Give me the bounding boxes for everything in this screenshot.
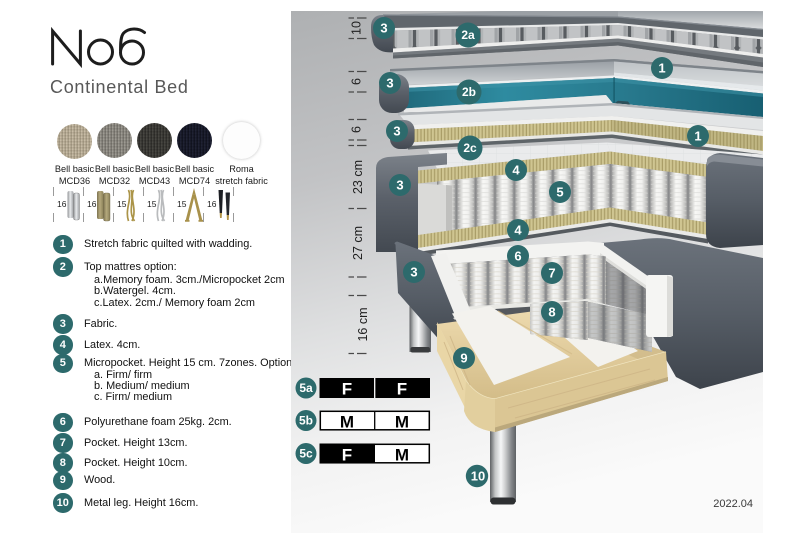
svg-text:27 cm: 27 cm	[351, 226, 365, 260]
svg-text:F: F	[342, 446, 352, 465]
svg-text:2b: 2b	[462, 85, 476, 99]
svg-text:4: 4	[514, 223, 522, 238]
svg-text:5: 5	[556, 185, 563, 200]
svg-text:15: 15	[147, 199, 157, 209]
svg-text:3: 3	[396, 178, 403, 193]
svg-text:M: M	[395, 446, 409, 465]
svg-text:15: 15	[117, 199, 127, 209]
svg-text:6: 6	[350, 78, 364, 85]
svg-text:5c: 5c	[299, 447, 313, 461]
svg-text:9: 9	[460, 351, 467, 366]
svg-text:16 cm: 16 cm	[356, 307, 370, 341]
svg-text:F: F	[342, 380, 352, 399]
svg-text:10: 10	[471, 469, 485, 484]
svg-text:M: M	[395, 413, 409, 432]
svg-text:16: 16	[207, 199, 217, 209]
svg-text:5b: 5b	[299, 414, 313, 428]
svg-text:M: M	[340, 413, 354, 432]
svg-text:6: 6	[514, 249, 521, 264]
svg-text:4: 4	[512, 163, 520, 178]
svg-text:1: 1	[694, 129, 701, 144]
svg-text:16: 16	[57, 199, 67, 209]
svg-text:2022.04: 2022.04	[713, 498, 753, 510]
svg-text:F: F	[397, 380, 407, 399]
svg-text:1: 1	[658, 61, 665, 76]
svg-text:3: 3	[393, 124, 400, 139]
svg-text:10: 10	[350, 21, 364, 35]
svg-text:2a: 2a	[461, 28, 475, 42]
svg-text:7: 7	[548, 266, 555, 281]
svg-text:6: 6	[350, 126, 364, 133]
svg-text:2c: 2c	[463, 141, 477, 155]
svg-text:8: 8	[548, 305, 555, 320]
svg-text:5a: 5a	[299, 381, 313, 395]
svg-text:15: 15	[177, 199, 187, 209]
svg-text:23 cm: 23 cm	[351, 160, 365, 194]
svg-text:3: 3	[410, 265, 417, 280]
svg-text:16: 16	[87, 199, 97, 209]
svg-text:3: 3	[380, 21, 387, 36]
svg-text:3: 3	[386, 76, 393, 91]
